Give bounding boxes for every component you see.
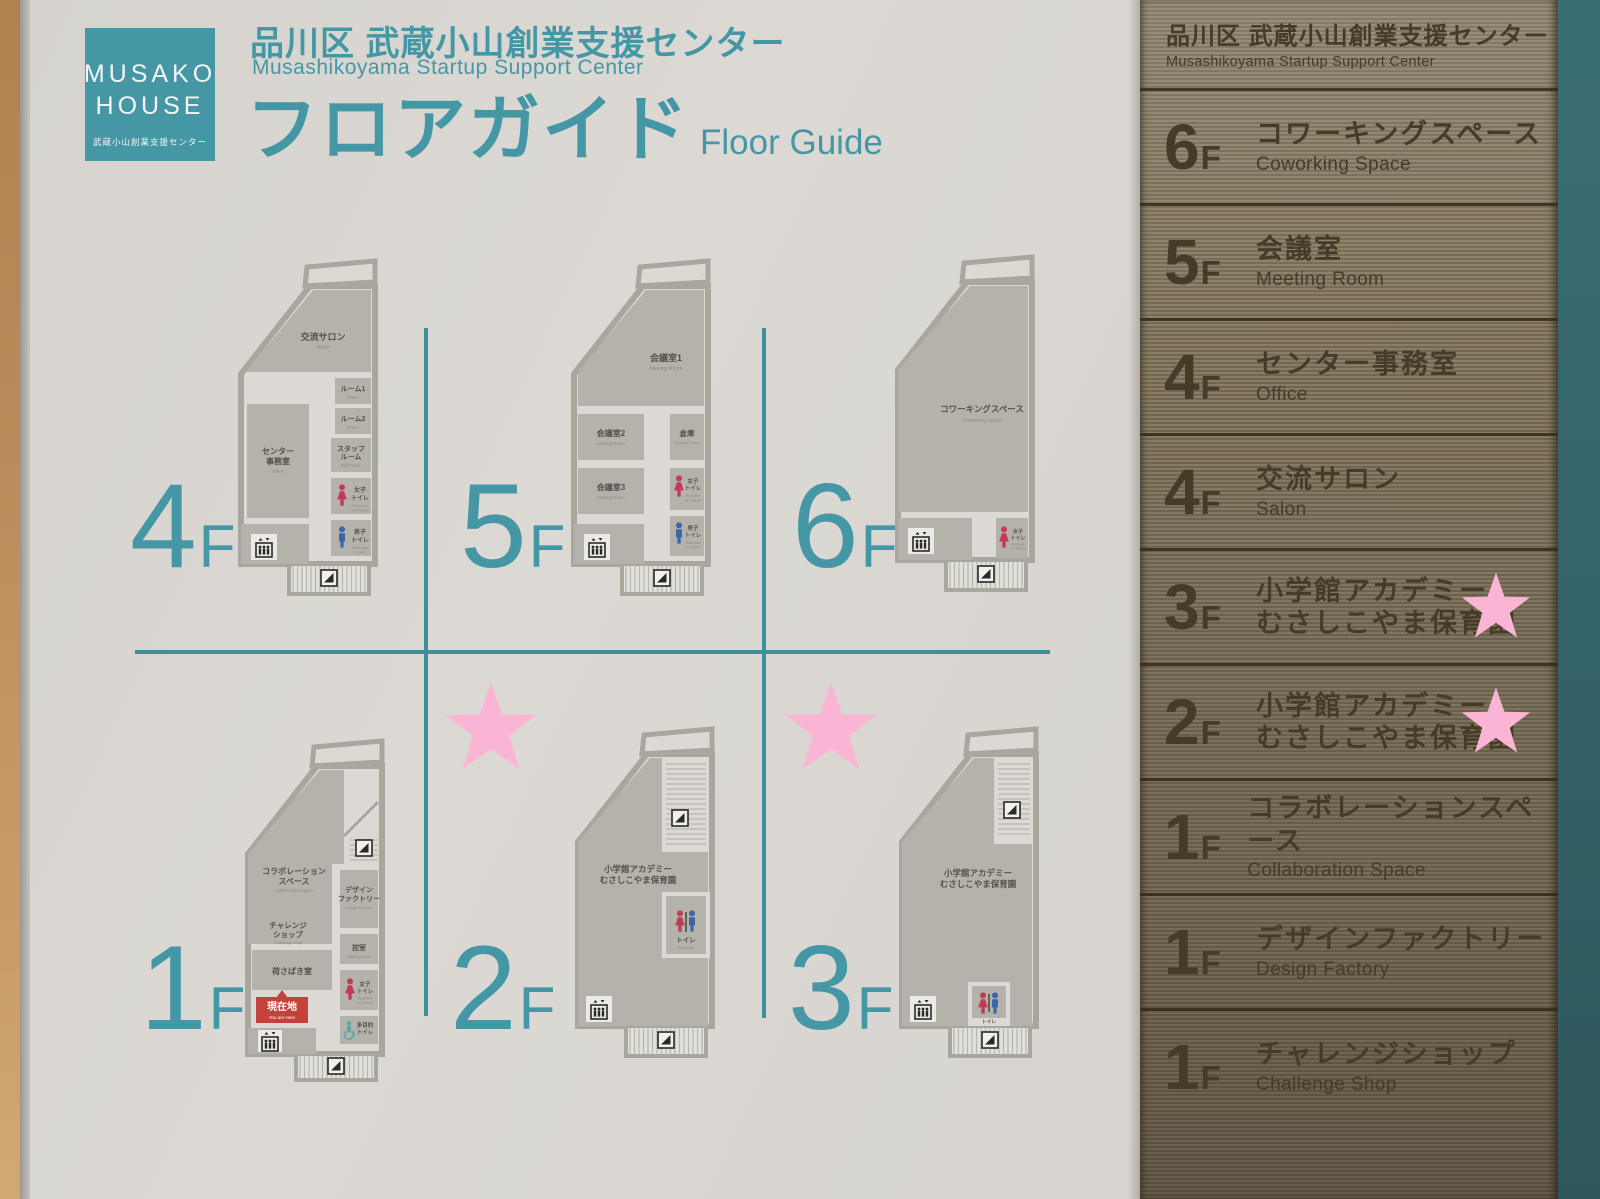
directory-floor-number: 2F: [1164, 695, 1256, 749]
room-staff: スタッフ: [337, 444, 365, 453]
directory-title-ja: 品川区 武蔵小山創業支援センター: [1166, 16, 1558, 51]
stairs-icon: [946, 560, 1026, 590]
svg-text:Room: Room: [347, 395, 359, 400]
room-room1: ルーム1: [341, 385, 366, 393]
directory-row-label-en: Collaboration Space: [1247, 860, 1558, 882]
svg-text:Staff Room: Staff Room: [341, 463, 362, 468]
svg-text:Meeting Room: Meeting Room: [650, 366, 683, 372]
directory-row: 1F コラボレーションスペース Collaboration Space: [1140, 778, 1558, 893]
floorplan-5f: 会議室1 Meeting Room 会議室2 Meeting Room 倉庫 S…: [558, 256, 758, 601]
grid-horizontal-line: [135, 650, 1050, 654]
svg-text:事務室: 事務室: [266, 456, 290, 466]
directory-floor-number: 5F: [1164, 235, 1256, 289]
directory-row-label-en: Office: [1256, 384, 1459, 406]
svg-text:Collaboration Space: Collaboration Space: [275, 888, 313, 893]
directory-header: 品川区 武蔵小山創業支援センター Musashikoyama Startup S…: [1140, 0, 1558, 88]
directory-floor-number: 1F: [1164, 1040, 1256, 1094]
svg-text:Design Factory: Design Factory: [346, 905, 373, 910]
directory-row-label-ja: コワーキングスペース: [1256, 118, 1542, 150]
elevator-icon: [258, 1030, 282, 1052]
directory-row: 6F コワーキングスペース Coworking Space: [1140, 88, 1558, 203]
svg-text:Restroom: Restroom: [352, 504, 368, 508]
svg-text:多目的: 多目的: [357, 1021, 374, 1029]
logo-line2: HOUSE: [96, 91, 205, 122]
directory-row-label-en: Coworking Space: [1256, 154, 1542, 176]
svg-text:Restroom: Restroom: [352, 546, 368, 550]
room-room2: ルーム2: [341, 415, 366, 423]
directory-row-label-en: Salon: [1256, 499, 1401, 521]
directory-row: 1F デザインファクトリー Design Factory: [1140, 893, 1558, 1008]
svg-text:むさしこやま保育園: むさしこやま保育園: [600, 875, 677, 885]
directory-title-en: Musashikoyama Startup Support Center: [1166, 54, 1558, 70]
floor-guide-sign-photo: MUSAKO HOUSE 武蔵小山創業支援センター 品川区 武蔵小山創業支援セン…: [0, 0, 1600, 1199]
directory-row-label-en: Meeting Room: [1256, 269, 1384, 291]
svg-text:むさしこやま保育園: むさしこやま保育園: [940, 879, 1017, 889]
directory-floor-number: 6F: [1164, 120, 1256, 174]
svg-text:トイレ: トイレ: [351, 495, 369, 502]
svg-text:男子: 男子: [354, 528, 366, 536]
svg-text:Meeting Room: Meeting Room: [597, 441, 625, 446]
logo-line1: MUSAKO: [84, 59, 216, 90]
elevator-icon: [251, 534, 277, 560]
star-icon: [1460, 571, 1532, 643]
svg-text:女子: 女子: [354, 486, 366, 494]
svg-text:Room: Room: [347, 425, 359, 430]
svg-text:Office: Office: [272, 469, 284, 474]
indoor-stairs: [998, 764, 1030, 834]
svg-text:トイレ: トイレ: [685, 532, 702, 539]
stairs-icon: [622, 564, 702, 594]
room-storage: 倉庫: [679, 428, 695, 438]
room-nursery: 小学館アカデミー: [943, 868, 1012, 878]
svg-text:ルーム: ルーム: [341, 453, 362, 461]
directory-row: 2F 小学館アカデミー むさしこやま保育園: [1140, 663, 1558, 778]
room-meeting1: 会議室1: [650, 352, 682, 363]
svg-text:Meeting Room: Meeting Room: [597, 495, 625, 500]
floorplan-4f: 交流サロン Salon ルーム1 Room ルーム2 Room スタッフ ルーム…: [225, 256, 425, 601]
room-salon: 交流サロン: [300, 331, 345, 342]
svg-text:トイレ: トイレ: [1010, 536, 1025, 542]
floor-guide-board: MUSAKO HOUSE 武蔵小山創業支援センター 品川区 武蔵小山創業支援セン…: [30, 0, 1140, 1199]
room-coworking: コワーキングスペース: [940, 404, 1024, 414]
elevator-icon: [586, 996, 612, 1022]
heading-ja: フロアガイド: [246, 70, 690, 175]
svg-text:トイレ: トイレ: [685, 485, 702, 492]
label-4f: 4F: [130, 478, 235, 574]
directory-floor-number: 4F: [1164, 465, 1256, 519]
stairs-icon: [289, 564, 369, 594]
svg-text:for Women: for Women: [357, 1001, 373, 1005]
svg-text:for Women: for Women: [1010, 547, 1026, 551]
directory-row-label-ja: デザインファクトリー: [1256, 923, 1545, 955]
svg-text:スペース: スペース: [278, 877, 309, 886]
directory-row-label-ja: コラボレーションスペース: [1247, 792, 1558, 857]
directory-floor-number: 1F: [1164, 810, 1247, 864]
star-icon: [783, 680, 879, 776]
room-nursery: 小学館アカデミー: [603, 864, 672, 874]
svg-text:for Women: for Women: [351, 509, 369, 513]
label-1f: 1F: [140, 940, 245, 1036]
directory-row: 4F センター事務室 Office: [1140, 318, 1558, 433]
svg-text:Salon: Salon: [317, 345, 330, 351]
svg-text:トイレ: トイレ: [357, 1029, 374, 1036]
svg-text:トイレ: トイレ: [357, 988, 374, 995]
directory-row-label-en: Challenge Shop: [1256, 1074, 1517, 1096]
stairs-icon: [950, 1026, 1030, 1056]
svg-text:男子: 男子: [687, 524, 699, 532]
room-waiting: 控室: [352, 943, 366, 952]
room-office: センター: [262, 446, 294, 456]
directory-row: 4F 交流サロン Salon: [1140, 433, 1558, 548]
grid-vertical-line-2: [762, 328, 766, 1018]
label-3f: 3F: [788, 940, 893, 1036]
room-toilet: トイレ: [982, 1019, 997, 1025]
svg-text:女子: 女子: [687, 477, 699, 485]
svg-text:Coworking Space: Coworking Space: [962, 418, 1001, 424]
directory-row-label-ja: チャレンジショップ: [1256, 1038, 1517, 1070]
room-meeting3: 会議室3: [597, 482, 626, 492]
wall-teal-strip: [1558, 0, 1600, 1199]
directory-row: 3F 小学館アカデミー むさしこやま保育園: [1140, 548, 1558, 663]
directory-row-label-en: Design Factory: [1256, 959, 1545, 981]
label-5f: 5F: [460, 478, 565, 574]
directory-floor-number: 1F: [1164, 925, 1256, 979]
svg-text:現在地: 現在地: [267, 1000, 297, 1013]
stairs-icon: [296, 1054, 376, 1080]
svg-text:for Men: for Men: [687, 546, 699, 550]
svg-text:ファクトリー: ファクトリー: [338, 894, 380, 903]
star-icon: [443, 680, 539, 776]
floorplan-2f: 小学館アカデミー むさしこやま保育園 トイレ Restroom: [562, 724, 762, 1069]
svg-text:Restroom: Restroom: [686, 541, 701, 545]
svg-text:for Women: for Women: [685, 499, 702, 503]
directory-row-label-ja: 交流サロン: [1256, 463, 1401, 495]
directory-row-label-ja: センター事務室: [1256, 348, 1459, 380]
room-loading: 荷さばき室: [271, 966, 312, 976]
room-design-factory: デザイン: [345, 885, 373, 894]
svg-text:女子: 女子: [359, 980, 371, 988]
star-icon: [1460, 686, 1532, 758]
elevator-icon: [908, 528, 934, 554]
svg-text:You are Here: You are Here: [269, 1015, 296, 1020]
elevator-icon: [584, 534, 610, 560]
directory-row-label-ja: 会議室: [1256, 233, 1384, 265]
floorplan-1f: コラボレーション スペース Collaboration Space チャレンジ …: [232, 736, 432, 1081]
svg-text:トイレ: トイレ: [351, 537, 369, 544]
room-toilet: トイレ: [676, 936, 696, 944]
floorplan-6f: コワーキングスペース Coworking Space 女子 トイレ Restro…: [882, 252, 1082, 597]
room-collaboration: コラボレーション: [262, 866, 326, 876]
svg-text:ショップ: ショップ: [273, 929, 303, 939]
directory-floor-number: 4F: [1164, 350, 1256, 404]
floorplan-3f: 小学館アカデミー むさしこやま保育園 トイレ: [886, 724, 1086, 1069]
svg-text:for Men: for Men: [354, 551, 366, 555]
musako-house-logo: MUSAKO HOUSE 武蔵小山創業支援センター: [85, 28, 215, 161]
stairs-icon: [626, 1026, 706, 1056]
label-2f: 2F: [450, 940, 555, 1036]
room-challenge-shop: チャレンジ: [269, 921, 307, 930]
directory-floor-number: 3F: [1164, 580, 1256, 634]
directory-row: 5F 会議室 Meeting Room: [1140, 203, 1558, 318]
svg-text:Waiting Room: Waiting Room: [347, 954, 373, 959]
room-meeting2: 会議室2: [597, 428, 626, 438]
svg-text:Challenge Shop: Challenge Shop: [274, 940, 303, 945]
wood-door-edge: [0, 0, 20, 1199]
svg-text:Restroom: Restroom: [678, 946, 694, 950]
heading-en: Floor Guide: [700, 123, 883, 163]
directory-panel: 品川区 武蔵小山創業支援センター Musashikoyama Startup S…: [1140, 0, 1558, 1199]
elevator-icon: [910, 996, 936, 1022]
board-heading: フロアガイド Floor Guide: [246, 70, 883, 175]
directory-row: 1F チャレンジショップ Challenge Shop: [1140, 1008, 1558, 1123]
svg-text:Storage Room: Storage Room: [675, 441, 699, 445]
svg-text:女子: 女子: [1013, 528, 1023, 535]
svg-text:Restroom: Restroom: [686, 494, 701, 498]
board-left-edge: [20, 0, 30, 1199]
logo-subtitle: 武蔵小山創業支援センター: [93, 136, 207, 148]
